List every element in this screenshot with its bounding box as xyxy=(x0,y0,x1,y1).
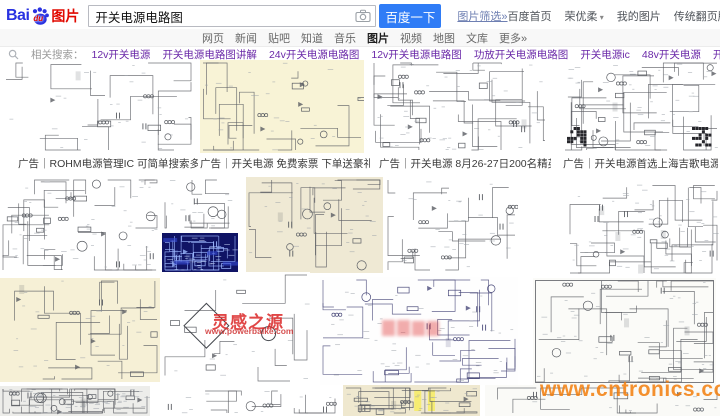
tab-网页[interactable]: 网页 xyxy=(202,30,224,46)
top-link-classic-paging[interactable]: 传统翻页版本 xyxy=(674,8,720,24)
ad-image-result[interactable] xyxy=(3,60,194,153)
top-link-user[interactable]: 荣优柔 ▾ xyxy=(565,8,604,24)
image-result[interactable] xyxy=(155,388,338,416)
image-result[interactable] xyxy=(320,277,518,385)
image-result[interactable] xyxy=(485,385,720,416)
image-result[interactable] xyxy=(246,177,383,273)
logo-text-bai: Bai xyxy=(6,7,29,25)
camera-icon[interactable] xyxy=(355,9,371,23)
tab-贴吧[interactable]: 贴吧 xyxy=(268,30,290,46)
chevron-down-icon: ▾ xyxy=(598,13,604,22)
nav-tabs: 网页新闻贴吧知道音乐图片视频地图文库更多» xyxy=(0,29,720,47)
search-box xyxy=(88,5,376,27)
image-result[interactable] xyxy=(162,272,310,384)
ad-caption[interactable]: 广告｜开关电源首选上海吉歌电源科技有... xyxy=(563,156,718,171)
tab-图片[interactable]: 图片 xyxy=(367,30,389,46)
ad-image-result[interactable] xyxy=(200,60,364,153)
image-result[interactable] xyxy=(162,177,238,231)
tab-视频[interactable]: 视频 xyxy=(400,30,422,46)
tab-地图[interactable]: 地图 xyxy=(433,30,455,46)
header: Bai du 图片 百度一下 图片筛选» 百度首页荣优柔 ▾我的图片传统翻页版本 xyxy=(0,0,720,29)
search-button[interactable]: 百度一下 xyxy=(379,4,441,28)
logo-text-suffix: 图片 xyxy=(51,6,79,26)
ad-caption[interactable]: 广告｜开关电源 8月26-27日200名精英设计师等... xyxy=(379,156,551,171)
image-result[interactable] xyxy=(385,177,518,273)
baidu-paw-icon: du xyxy=(30,6,50,26)
image-result[interactable] xyxy=(533,278,716,385)
image-result[interactable] xyxy=(0,278,160,382)
tab-知道[interactable]: 知道 xyxy=(301,30,323,46)
search-input[interactable] xyxy=(88,5,376,27)
ad-caption[interactable]: 广告｜ROHM电源管理IC 可简单搜索多种产品线! xyxy=(18,156,198,171)
top-links: 百度首页荣优柔 ▾我的图片传统翻页版本 xyxy=(508,8,720,24)
image-result[interactable] xyxy=(567,177,720,276)
image-filter-link[interactable]: 图片筛选» xyxy=(457,8,507,24)
top-link-my-images[interactable]: 我的图片 xyxy=(617,8,661,24)
image-result[interactable] xyxy=(0,386,150,416)
ad-image-result[interactable] xyxy=(371,60,548,153)
search-icon xyxy=(8,49,19,60)
tab-更多»[interactable]: 更多» xyxy=(499,30,527,46)
image-result[interactable] xyxy=(0,177,160,273)
baidu-logo[interactable]: Bai du 图片 xyxy=(6,6,79,26)
logo-text-du: du xyxy=(33,14,43,23)
ad-image-result[interactable] xyxy=(562,60,720,153)
image-result[interactable] xyxy=(162,233,238,273)
tab-文库[interactable]: 文库 xyxy=(466,30,488,46)
tab-音乐[interactable]: 音乐 xyxy=(334,30,356,46)
ad-caption[interactable]: 广告｜开关电源 免费索票 下单送豪礼 xyxy=(200,156,370,171)
image-result[interactable] xyxy=(343,385,480,416)
tab-新闻[interactable]: 新闻 xyxy=(235,30,257,46)
top-link-home[interactable]: 百度首页 xyxy=(508,8,552,24)
